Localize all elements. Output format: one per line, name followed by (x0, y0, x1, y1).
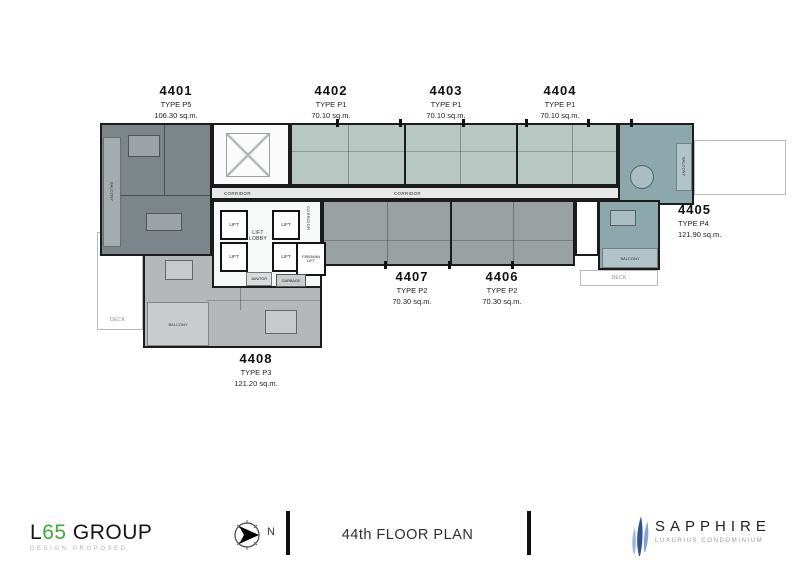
corridor-label-vertical: CORRIDOR (306, 206, 311, 230)
unit-number: 4408 (216, 351, 296, 366)
l65-letter: L (30, 521, 42, 544)
furniture (265, 310, 297, 334)
door-mark (399, 119, 402, 127)
unit-type: TYPE P1 (520, 100, 600, 109)
sapphire-gem-icon (629, 514, 651, 556)
lift-label: LIFT (229, 255, 238, 260)
unit-label-4402: 4402 TYPE P1 70.10 sq.m. (291, 83, 371, 120)
unit-label-4407: 4407 TYPE P2 70.30 sq.m. (372, 269, 452, 306)
l65-group-wordmark: L65 GROUP (30, 521, 152, 545)
unit-type: TYPE P1 (291, 100, 371, 109)
door-mark (384, 261, 387, 269)
janitor-room: JANITOR (246, 272, 272, 286)
corridor-label: CORRIDOR (394, 191, 421, 196)
unit-type: TYPE P4 (678, 219, 768, 228)
lift-label: LIFT (281, 255, 290, 260)
unit-label-4401: 4401 TYPE P5 106.30 sq.m. (136, 83, 216, 120)
l65-tagline: DESIGN PROPOSED (30, 546, 152, 552)
lift-lobby-label: LIFT LOBBY (247, 230, 269, 242)
floor-plan-title: 44th FLOOR PLAN (300, 527, 515, 543)
furniture (165, 260, 193, 280)
unit-area: 106.30 sq.m. (136, 111, 216, 120)
compass-icon (228, 515, 268, 555)
stairs (226, 133, 270, 177)
l65-group-word: GROUP (67, 521, 153, 544)
stair-core-top (212, 123, 290, 186)
divider-bar (527, 511, 531, 555)
garbage-room: GARBAGE (276, 274, 306, 287)
lift-shaft: LIFT (220, 210, 248, 240)
unit-number: 4401 (136, 83, 216, 98)
door-mark (587, 119, 590, 127)
units-4402-4404-wing (290, 123, 618, 186)
unit-area: 70.10 sq.m. (406, 111, 486, 120)
unit-number: 4403 (406, 83, 486, 98)
door-mark (525, 119, 528, 127)
deck-outline-right (694, 140, 786, 195)
unit-type: TYPE P1 (406, 100, 486, 109)
balcony-corner: BALCONY (676, 143, 692, 191)
door-mark (511, 261, 514, 269)
unit-area: 70.30 sq.m. (372, 297, 452, 306)
balcony-4401: BALCONY (103, 137, 121, 247)
door-mark (448, 261, 451, 269)
deck-label: DECK (110, 317, 125, 323)
garbage-label: GARBAGE (282, 279, 301, 283)
floor-plan-sheet: DECK DECK BALCONY BALCONY (0, 0, 800, 565)
unit-label-4405: 4405 TYPE P4 121.90 sq.m. (678, 202, 768, 239)
lift-shaft: LIFT (272, 210, 300, 240)
unit-type: TYPE P2 (462, 286, 542, 295)
lift-label: LIFT (229, 223, 238, 228)
stairs-lower (575, 200, 599, 256)
corridor-band: CORRIDOR CORRIDOR (212, 186, 618, 200)
fireman-lift-label: FIREMAN LIFT (298, 255, 324, 264)
unit-area: 70.10 sq.m. (291, 111, 371, 120)
unit-area: 70.30 sq.m. (462, 297, 542, 306)
unit-number: 4404 (520, 83, 600, 98)
unit-4401-area: BALCONY (100, 123, 212, 256)
furniture (128, 135, 160, 157)
fireman-lift-shaft: FIREMAN LIFT (296, 242, 326, 276)
furniture (610, 210, 636, 226)
sapphire-tagline: LUXURIUS CONDOMINIUM (655, 538, 771, 544)
unit-type: TYPE P2 (372, 286, 452, 295)
balcony-4405: BALCONY (602, 248, 658, 268)
l65-number: 65 (42, 521, 66, 544)
l65-group-logo: L65 GROUP DESIGN PROPOSED (30, 521, 152, 552)
door-mark (462, 119, 465, 127)
door-mark (336, 119, 339, 127)
corridor-label: CORRIDOR (224, 191, 251, 196)
dining-table (630, 165, 654, 189)
unit-area: 121.20 sq.m. (216, 379, 296, 388)
sapphire-wordmark: SAPPHIRE (655, 518, 771, 535)
north-label: N (267, 526, 275, 538)
sapphire-logo: SAPPHIRE LUXURIUS CONDOMINIUM (655, 518, 771, 544)
units-4406-4407-wing (322, 200, 575, 266)
unit-4405-corner-area: BALCONY (618, 123, 694, 205)
unit-area: 121.90 sq.m. (678, 230, 768, 239)
balcony-label: BALCONY (110, 182, 115, 201)
unit-label-4406: 4406 TYPE P2 70.30 sq.m. (462, 269, 542, 306)
unit-label-4403: 4403 TYPE P1 70.10 sq.m. (406, 83, 486, 120)
unit-area: 70.10 sq.m. (520, 111, 600, 120)
unit-number: 4402 (291, 83, 371, 98)
unit-number: 4405 (678, 202, 768, 217)
janitor-label: JANITOR (251, 277, 267, 281)
unit-type: TYPE P5 (136, 100, 216, 109)
unit-number: 4407 (372, 269, 452, 284)
lift-label: LIFT (281, 223, 290, 228)
deck-label: DECK (611, 275, 626, 281)
balcony-4408: BALCONY (147, 302, 209, 346)
balcony-label: BALCONY (620, 256, 639, 261)
lift-shaft: LIFT (220, 242, 248, 272)
unit-label-4408: 4408 TYPE P3 121.20 sq.m. (216, 351, 296, 388)
deck-outline-4405: DECK (580, 270, 658, 286)
furniture (146, 213, 182, 231)
balcony-label: BALCONY (682, 157, 687, 176)
unit-type: TYPE P3 (216, 368, 296, 377)
unit-4405-area: BALCONY (598, 200, 660, 270)
divider-bar (286, 511, 290, 555)
unit-number: 4406 (462, 269, 542, 284)
unit-label-4404: 4404 TYPE P1 70.10 sq.m. (520, 83, 600, 120)
balcony-label: BALCONY (168, 322, 187, 327)
door-mark (630, 119, 633, 127)
lift-core: LIFT LIFT LIFT LIFT LIFT LOBBY CORRIDOR … (212, 200, 322, 288)
